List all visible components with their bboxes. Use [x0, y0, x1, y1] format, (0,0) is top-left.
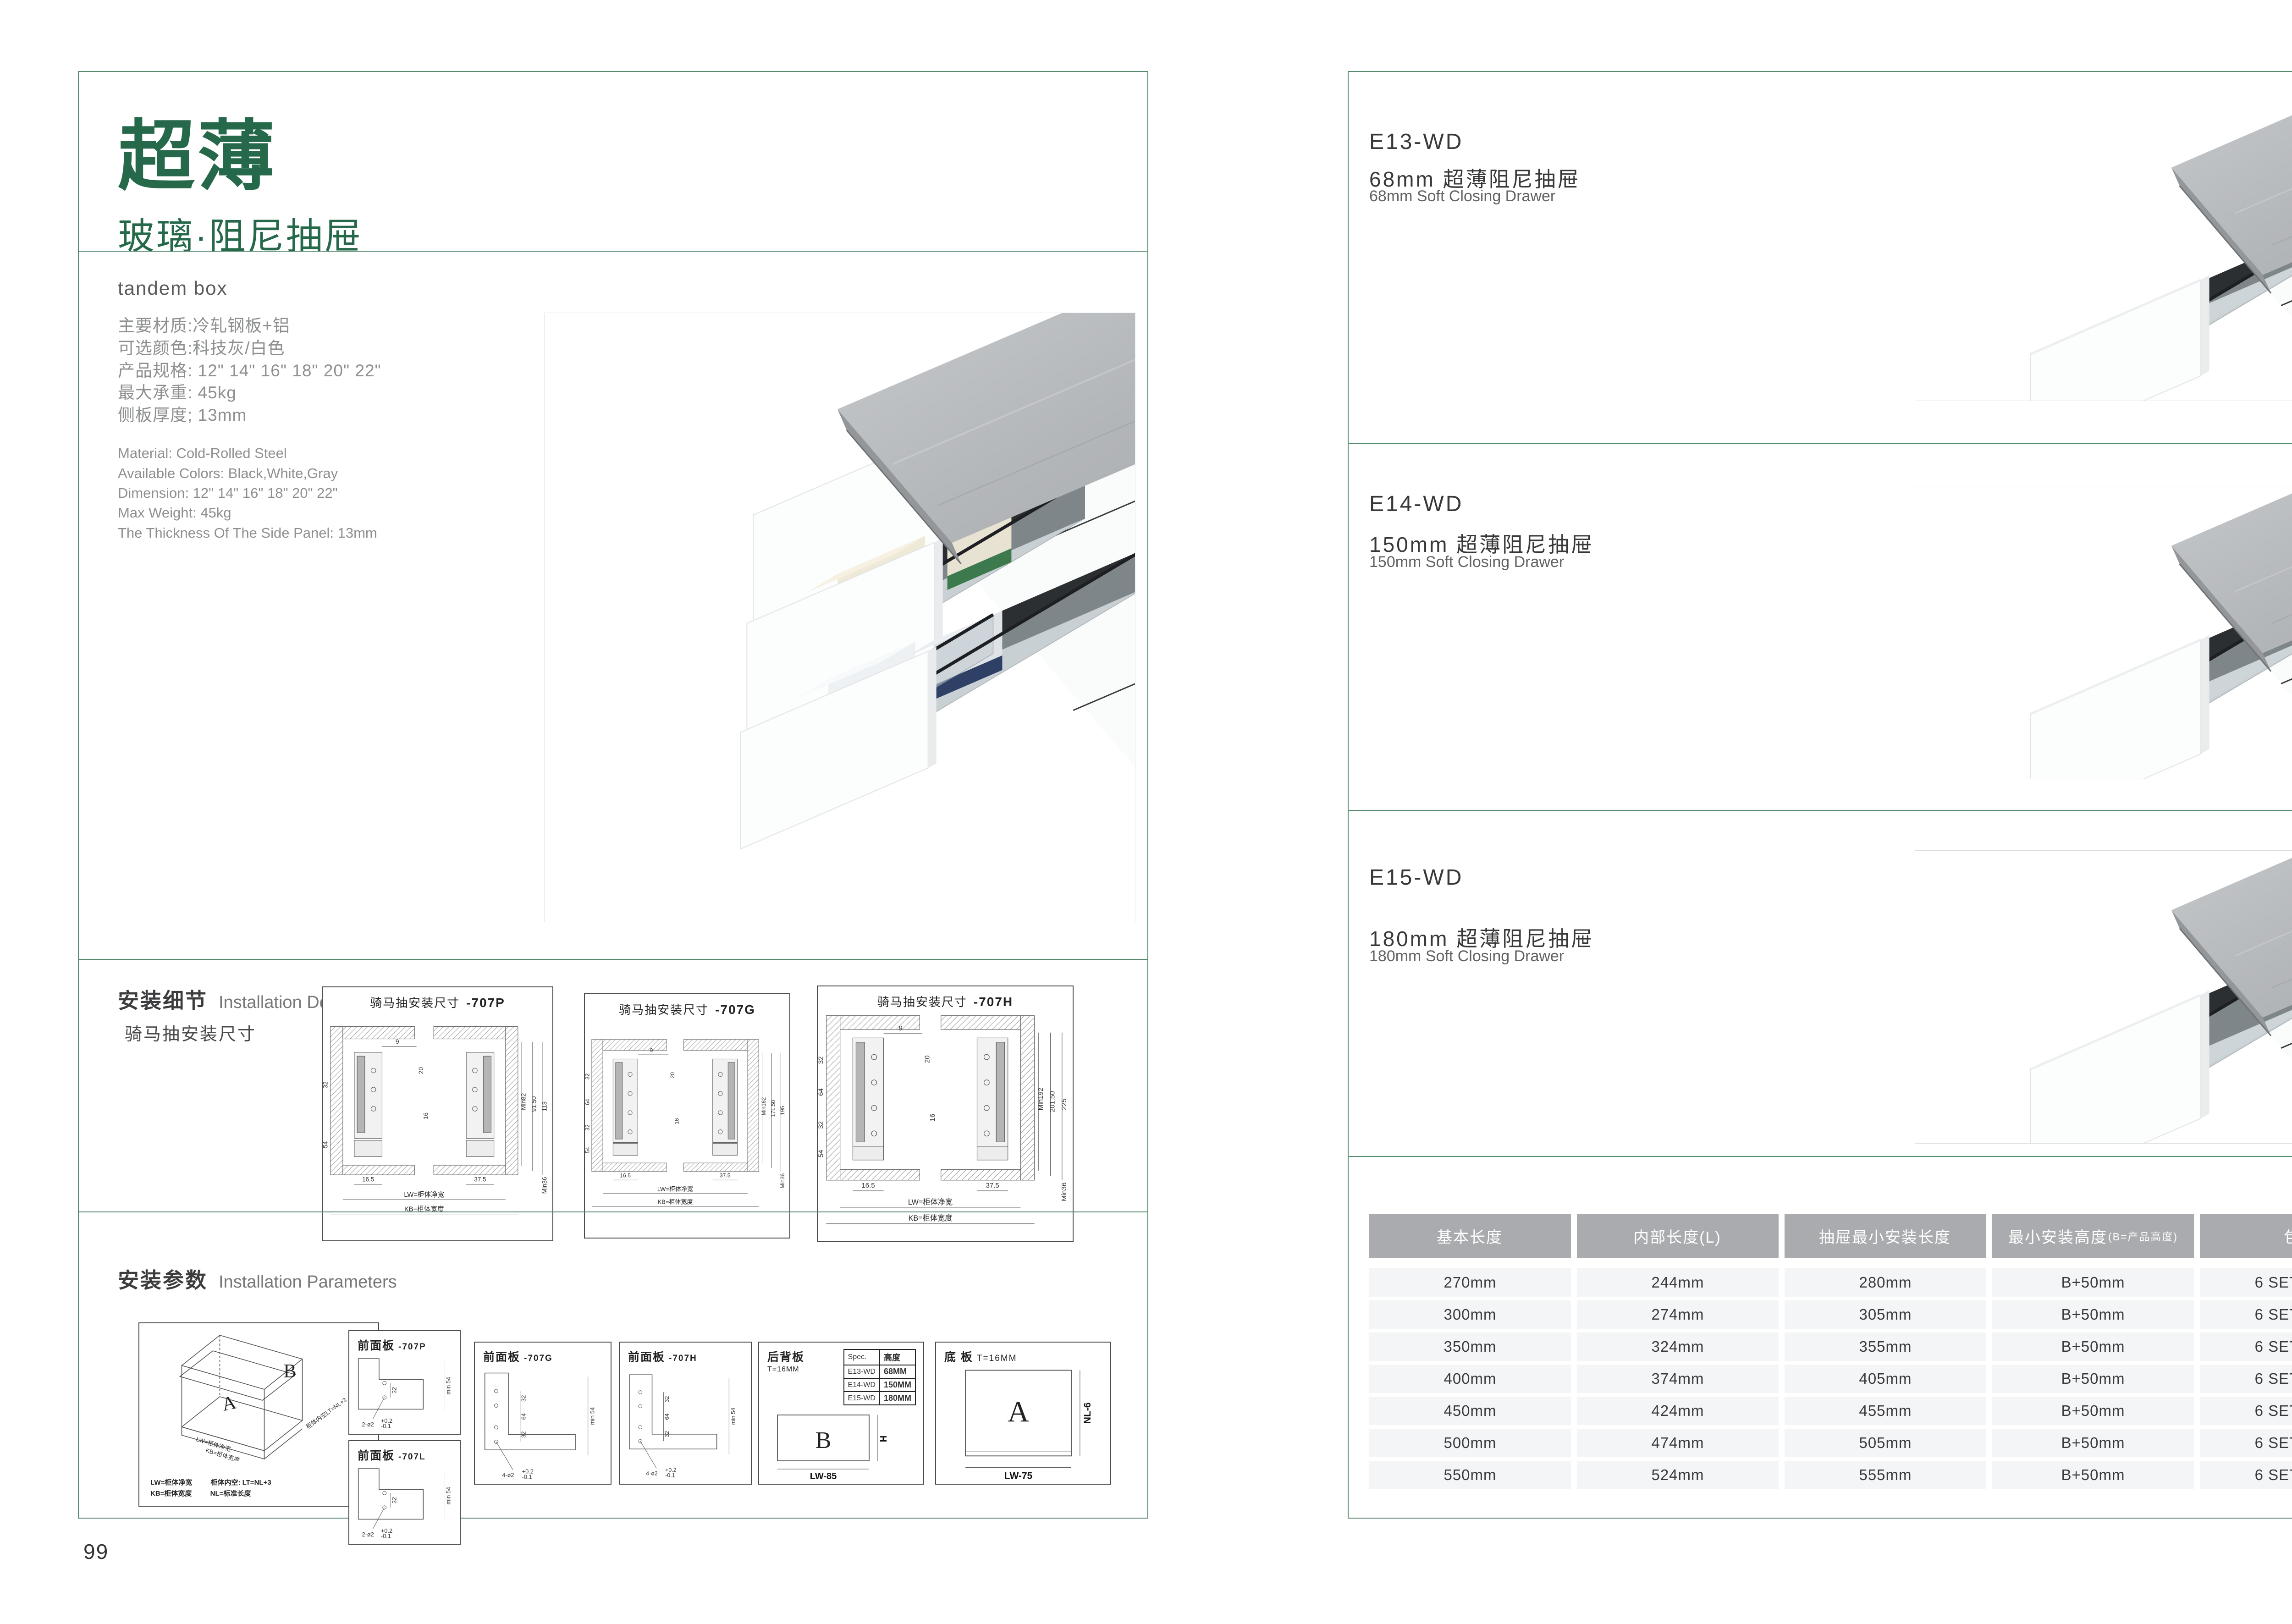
bottom-panel-box: 底 板T=16MM A NL-6 LW-75 — [935, 1342, 1111, 1485]
spec-table-header: 基本长度 内部长度(L) 抽屉最小安装长度 最小安装高度(B=产品高度) 包装 — [1369, 1214, 2292, 1258]
dim-label: 171.50 — [770, 1100, 776, 1117]
iso-legend: LW=柜体净宽 柜体内空: LT=NL+3 KB=柜体宽度 NL=标准长度 — [150, 1477, 288, 1499]
table-cell: 550mm — [1369, 1461, 1571, 1489]
table-cell: 500mm — [1369, 1429, 1571, 1457]
product-model: E15-WD — [1369, 865, 1463, 890]
catalog-spread: 超薄 玻璃·阻尼抽屉 tandem box 主要材质:冷轧钢板+铝 可选颜色:科… — [0, 0, 2292, 1624]
dim-label: 225 — [1060, 1099, 1068, 1110]
product-image-e15 — [1915, 850, 2292, 1144]
dim-label: 37.5 — [474, 1176, 486, 1183]
dim-label: min 54 — [445, 1487, 452, 1504]
table-cell: 6 SETC/TNB — [2200, 1429, 2292, 1457]
spec-model: E14-WD — [844, 1378, 880, 1392]
table-header-cell: 最小安装高度(B=产品高度) — [1992, 1214, 2194, 1258]
section-title-cn: 安装细节 — [118, 984, 208, 1014]
table-cell: 524mm — [1577, 1461, 1779, 1489]
spec-line: Max Weight: 45kg — [118, 503, 530, 523]
table-cell: 505mm — [1785, 1429, 1986, 1457]
product-image-e13 — [1915, 108, 2292, 401]
table-cell: 350mm — [1369, 1332, 1571, 1361]
diagram-model: -707G — [715, 1002, 755, 1017]
spec-line: The Thickness Of The Side Panel: 13mm — [118, 523, 530, 543]
spec-model: E15-WD — [844, 1392, 880, 1405]
dim-label: 91.50 — [531, 1096, 538, 1112]
product-specs: 主要材质:冷轧钢板+铝 可选颜色:科技灰/白色 产品规格: 12" 14" 16… — [118, 315, 530, 543]
table-header-cell: 包装 — [2200, 1214, 2292, 1258]
product-model: E14-WD — [1369, 491, 1463, 517]
panel-thickness: T=16MM — [767, 1365, 804, 1374]
table-cell: 474mm — [1577, 1429, 1779, 1457]
bottom-panel-drawing: A NL-6 LW-75 — [936, 1366, 1110, 1482]
table-cell: 244mm — [1577, 1268, 1779, 1297]
divider — [79, 959, 1147, 960]
table-cell: 274mm — [1577, 1300, 1779, 1329]
dim-label: 64 — [818, 1088, 825, 1096]
panel-title: 前面板 — [358, 1449, 395, 1462]
panel-drawing: 32 min 54 2-ø2 +0.2 -0.1 — [349, 1461, 460, 1543]
panel-model: -707H — [669, 1354, 697, 1363]
dim-label: 9 — [899, 1024, 903, 1032]
divider — [79, 1211, 1147, 1212]
left-page-header: 超薄 玻璃·阻尼抽屉 tandem box — [118, 118, 363, 299]
spec-col-header: Spec. — [844, 1349, 880, 1365]
spec-line: 主要材质:冷轧钢板+铝 — [118, 315, 530, 337]
table-cell: 6 SETC/TNB — [2200, 1300, 2292, 1329]
dim-label: 201.50 — [1049, 1091, 1057, 1112]
product-name-en: 150mm Soft Closing Drawer — [1369, 553, 1564, 571]
dim-label: 54 — [818, 1150, 825, 1158]
dim-label: NL-6 — [1082, 1403, 1093, 1424]
table-cell: 270mm — [1369, 1268, 1571, 1297]
install-diagram-707h: 骑马抽安装尺寸 -707H 9 20 — [817, 985, 1074, 1242]
dim-label: 64 — [520, 1413, 527, 1420]
table-header-cell: 内部长度(L) — [1577, 1214, 1779, 1258]
dim-label: 9 — [650, 1047, 653, 1054]
dim-label: Min36 — [1060, 1183, 1068, 1201]
legend-item: 柜体内空: LT=NL+3 — [210, 1479, 271, 1486]
dim-label: min 54 — [445, 1377, 452, 1394]
dim-label: 32 — [818, 1057, 825, 1064]
dim-label: 20 — [923, 1055, 931, 1063]
table-row: 270mm244mm280mmB+50mm6 SETC/TNB — [1369, 1268, 2292, 1297]
table-cell: B+50mm — [1992, 1365, 2194, 1393]
install-diagram-707p: 骑马抽安装尺寸 -707P 9 20 — [322, 986, 553, 1241]
dim-label: 64 — [664, 1414, 670, 1420]
technical-drawing: 9 20 16 32 64 32 54 Min192 201.50 225 Mi… — [818, 1010, 1073, 1241]
divider — [1349, 1156, 2292, 1157]
panel-drawing: 32 64 32 min 54 4-ø2 +0.2 -0.1 — [475, 1364, 611, 1484]
spec-table-rows: 270mm244mm280mmB+50mm6 SETC/TNB300mm274m… — [1369, 1268, 2292, 1489]
panel-title: 前面板 — [628, 1351, 665, 1364]
dim-label: 9 — [396, 1038, 399, 1045]
drawer-illustration — [1915, 851, 2292, 1143]
dim-label: LW=柜体净宽 — [657, 1185, 693, 1192]
iso-letter-back: B — [283, 1361, 296, 1382]
spec-line: Material: Cold-Rolled Steel — [118, 443, 530, 463]
section-title-en: Installation Parameters — [219, 1272, 397, 1292]
dim-label: 32 — [664, 1431, 670, 1437]
back-panel-box: 后背板 T=16MM Spec. 高度 E13-WD 68MM E14-WD 1… — [758, 1342, 924, 1485]
dim-label: 32 — [520, 1431, 527, 1438]
technical-drawing: 9 20 16 32 54 Min82 91.50 113 Min36 16.5… — [323, 1011, 552, 1240]
panel-model: -707L — [398, 1452, 426, 1462]
legend-item: LW=柜体净宽 — [150, 1479, 192, 1486]
left-page: 超薄 玻璃·阻尼抽屉 tandem box 主要材质:冷轧钢板+铝 可选颜色:科… — [78, 71, 1148, 1519]
dim-label: LW-75 — [1004, 1471, 1033, 1481]
table-row: 400mm374mm405mmB+50mm6 SETC/TNB — [1369, 1365, 2292, 1393]
divider — [79, 251, 1147, 252]
product-name-en: 68mm Soft Closing Drawer — [1369, 187, 1555, 205]
dim-label: 16 — [673, 1118, 680, 1124]
dim-label: 32 — [818, 1121, 825, 1129]
table-row: 450mm424mm455mmB+50mm6 SETC/TNB — [1369, 1397, 2292, 1425]
panel-thickness: T=16MM — [977, 1354, 1017, 1363]
divider — [1349, 810, 2292, 811]
table-header-cell: 抽屉最小安装长度 — [1785, 1214, 1986, 1258]
page-number-left: 99 — [83, 1539, 109, 1564]
spec-line: 侧板厚度; 13mm — [118, 404, 530, 427]
table-cell: 374mm — [1577, 1365, 1779, 1393]
page-title: 超薄 — [118, 118, 363, 195]
drawer-illustration — [1915, 486, 2292, 779]
panel-model: -707P — [398, 1342, 426, 1352]
table-row: 500mm474mm505mmB+50mm6 SETC/TNB — [1369, 1429, 2292, 1457]
panel-title: 前面板 — [483, 1351, 520, 1364]
product-name-en: 180mm Soft Closing Drawer — [1369, 947, 1564, 965]
table-cell: B+50mm — [1992, 1397, 2194, 1425]
spec-line: 可选颜色:科技灰/白色 — [118, 337, 530, 360]
dim-label: 32 — [520, 1395, 527, 1402]
diagram-model: -707P — [466, 996, 505, 1010]
dim-label: KB=柜体宽度 — [658, 1198, 693, 1205]
dim-label: 113 — [541, 1101, 548, 1112]
iso-cabinet-diagram: B A LW=柜体净宽 KB=柜体宽度 柜体内空LT=NL+3 LW=柜体净宽 … — [138, 1322, 379, 1507]
dim-label: 16 — [423, 1112, 430, 1119]
iso-dim-lt: 柜体内空LT=NL+3 — [305, 1396, 348, 1430]
table-cell: 324mm — [1577, 1332, 1779, 1361]
table-cell: B+50mm — [1992, 1429, 2194, 1457]
spec-line: 产品规格: 12" 14" 16" 18" 20" 22" — [118, 360, 530, 382]
dim-label: 32 — [323, 1081, 329, 1088]
dim-label: 64 — [585, 1099, 590, 1105]
panel-title: 底 板 — [944, 1351, 973, 1364]
dim-label: 195 — [779, 1106, 786, 1115]
dim-label: 16.5 — [620, 1173, 631, 1179]
page-caption: tandem box — [118, 277, 363, 299]
divider — [1349, 443, 2292, 444]
front-panel-707l: 前面板-707L 32 min 54 2-ø2 +0.2 -0.1 — [348, 1440, 461, 1545]
tolerance: -0.1 — [381, 1533, 391, 1540]
height-spec-table: Spec. 高度 E13-WD 68MM E14-WD 150MM E15-WD… — [843, 1349, 916, 1405]
iso-drawing: B A LW=柜体净宽 KB=柜体宽度 柜体内空LT=NL+3 — [139, 1323, 378, 1461]
dim-label: Min36 — [541, 1177, 548, 1194]
install-diagram-707g: 骑马抽安装尺寸 -707G 9 20 — [584, 993, 790, 1239]
dim-label: 20 — [669, 1072, 676, 1079]
back-panel-drawing: B H LW-85 — [764, 1412, 915, 1481]
dim-label: KB=柜体宽度 — [909, 1214, 953, 1222]
tolerance: -0.1 — [522, 1473, 532, 1480]
table-row: 350mm324mm355mmB+50mm6 SETC/TNB — [1369, 1332, 2292, 1361]
dim-label: 54 — [585, 1147, 590, 1153]
dim-label: 16.5 — [362, 1176, 374, 1183]
hero-product-image — [544, 313, 1135, 922]
front-panel-707g: 前面板-707G 32 64 32 min 54 4-ø2 +0.2 -0.1 — [474, 1342, 612, 1485]
dim-label: min 54 — [730, 1408, 737, 1425]
dim-label: LW=柜体净宽 — [908, 1198, 953, 1206]
spec-line: 最大承重: 45kg — [118, 382, 530, 404]
table-cell: 6 SETC/TNB — [2200, 1332, 2292, 1361]
panel-drawing: 32 min 54 2-ø2 +0.2 -0.1 — [349, 1351, 460, 1433]
diagram-caption: 骑马抽安装尺寸 — [370, 994, 460, 1011]
table-cell: 355mm — [1785, 1332, 1986, 1361]
dim-label: 32 — [391, 1497, 397, 1503]
panel-title: 前面板 — [358, 1339, 395, 1352]
table-cell: B+50mm — [1992, 1461, 2194, 1489]
panel-letter: A — [1008, 1396, 1029, 1429]
table-row: 300mm274mm305mmB+50mm6 SETC/TNB — [1369, 1300, 2292, 1329]
dim-label: min 54 — [589, 1407, 595, 1425]
legend-item: KB=柜体宽度 — [150, 1490, 192, 1497]
dim-label: 54 — [323, 1141, 329, 1148]
table-cell: 450mm — [1369, 1397, 1571, 1425]
table-cell: 300mm — [1369, 1300, 1571, 1329]
front-panel-707h: 前面板-707H 32 64 32 min 54 4-ø2 +0.2 -0.1 — [619, 1342, 752, 1485]
hole-label: 2-ø2 — [362, 1531, 374, 1538]
dim-label: 32 — [391, 1387, 397, 1393]
spec-height: 180MM — [880, 1392, 915, 1405]
iso-letter-base: A — [220, 1392, 238, 1415]
table-cell: 555mm — [1785, 1461, 1986, 1489]
tolerance: -0.1 — [665, 1472, 675, 1478]
drawer-illustration — [1915, 108, 2292, 401]
table-cell: 305mm — [1785, 1300, 1986, 1329]
table-header-cell: 基本长度 — [1369, 1214, 1571, 1258]
table-cell: 6 SETC/TNB — [2200, 1268, 2292, 1297]
drawer-illustration — [545, 313, 1135, 922]
table-cell: 6 SETC/TNB — [2200, 1365, 2292, 1393]
dim-label: 37.5 — [986, 1182, 999, 1189]
spec-model: E13-WD — [844, 1365, 880, 1378]
install-params-heading: 安装参数 Installation Parameters — [118, 1264, 397, 1294]
table-cell: 400mm — [1369, 1365, 1571, 1393]
spec-line: Available Colors: Black,White,Gray — [118, 463, 530, 483]
dim-label: 20 — [418, 1067, 424, 1074]
page-subtitle: 玻璃·阻尼抽屉 — [118, 207, 363, 260]
section-title-cn: 安装参数 — [118, 1264, 208, 1294]
spec-height: 150MM — [880, 1378, 915, 1392]
dim-label: H — [879, 1436, 889, 1442]
table-cell: 455mm — [1785, 1397, 1986, 1425]
table-cell: B+50mm — [1992, 1268, 2194, 1297]
spec-height: 68MM — [880, 1365, 915, 1378]
dim-label: 16.5 — [861, 1182, 875, 1189]
table-row: 550mm524mm555mmB+50mm6 SETC/TNB — [1369, 1461, 2292, 1489]
dim-label: 32 — [585, 1124, 590, 1131]
dim-label: LW-85 — [810, 1471, 837, 1481]
install-details-subtitle: 骑马抽安装尺寸 — [125, 1020, 256, 1045]
panel-model: -707G — [524, 1354, 553, 1363]
diagram-model: -707H — [974, 995, 1013, 1009]
dim-label: 37.5 — [720, 1173, 731, 1179]
table-cell: 405mm — [1785, 1365, 1986, 1393]
dim-label: LW=柜体净宽 — [404, 1191, 444, 1199]
dim-label: 16 — [929, 1114, 937, 1122]
table-cell: 424mm — [1577, 1397, 1779, 1425]
spec-line: Dimension: 12" 14" 16" 18" 20" 22" — [118, 483, 530, 503]
product-image-e14 — [1915, 486, 2292, 779]
product-model: E13-WD — [1369, 129, 1463, 154]
front-panel-707p: 前面板-707P 32 min 54 2-ø2 +0.2 -0.1 — [348, 1330, 461, 1435]
dim-label: Min192 — [1037, 1088, 1045, 1110]
dim-label: Min82 — [520, 1093, 527, 1110]
diagram-caption: 骑马抽安装尺寸 — [619, 1001, 709, 1018]
right-page: E13-WD 68mm 超薄阻尼抽屉 68mm Soft Closing Dra… — [1348, 71, 2292, 1519]
dim-label: 32 — [585, 1073, 590, 1080]
table-cell: 6 SETC/TNB — [2200, 1461, 2292, 1489]
panel-title: 后背板 — [767, 1351, 804, 1364]
panel-letter: B — [815, 1427, 832, 1453]
hole-label: 4-ø2 — [502, 1471, 514, 1478]
table-cell: 6 SETC/TNB — [2200, 1397, 2292, 1425]
table-cell: 280mm — [1785, 1268, 1986, 1297]
hole-label: 4-ø2 — [646, 1470, 658, 1476]
table-cell: B+50mm — [1992, 1332, 2194, 1361]
diagram-caption: 骑马抽安装尺寸 — [877, 993, 967, 1010]
dim-label: 32 — [664, 1396, 670, 1403]
tolerance: -0.1 — [381, 1423, 391, 1430]
hole-label: 2-ø2 — [362, 1421, 374, 1428]
technical-drawing: 9 20 16 32 64 32 54 Min162 171.50 195 Mi… — [585, 1018, 789, 1238]
panel-drawing: 32 64 32 min 54 4-ø2 +0.2 -0.1 — [620, 1364, 751, 1484]
legend-item: NL=标准长度 — [210, 1490, 251, 1497]
table-cell: B+50mm — [1992, 1300, 2194, 1329]
spec-col-header: 高度 — [880, 1349, 915, 1365]
dim-label: Min162 — [760, 1097, 767, 1115]
dim-label: Min36 — [779, 1173, 786, 1188]
